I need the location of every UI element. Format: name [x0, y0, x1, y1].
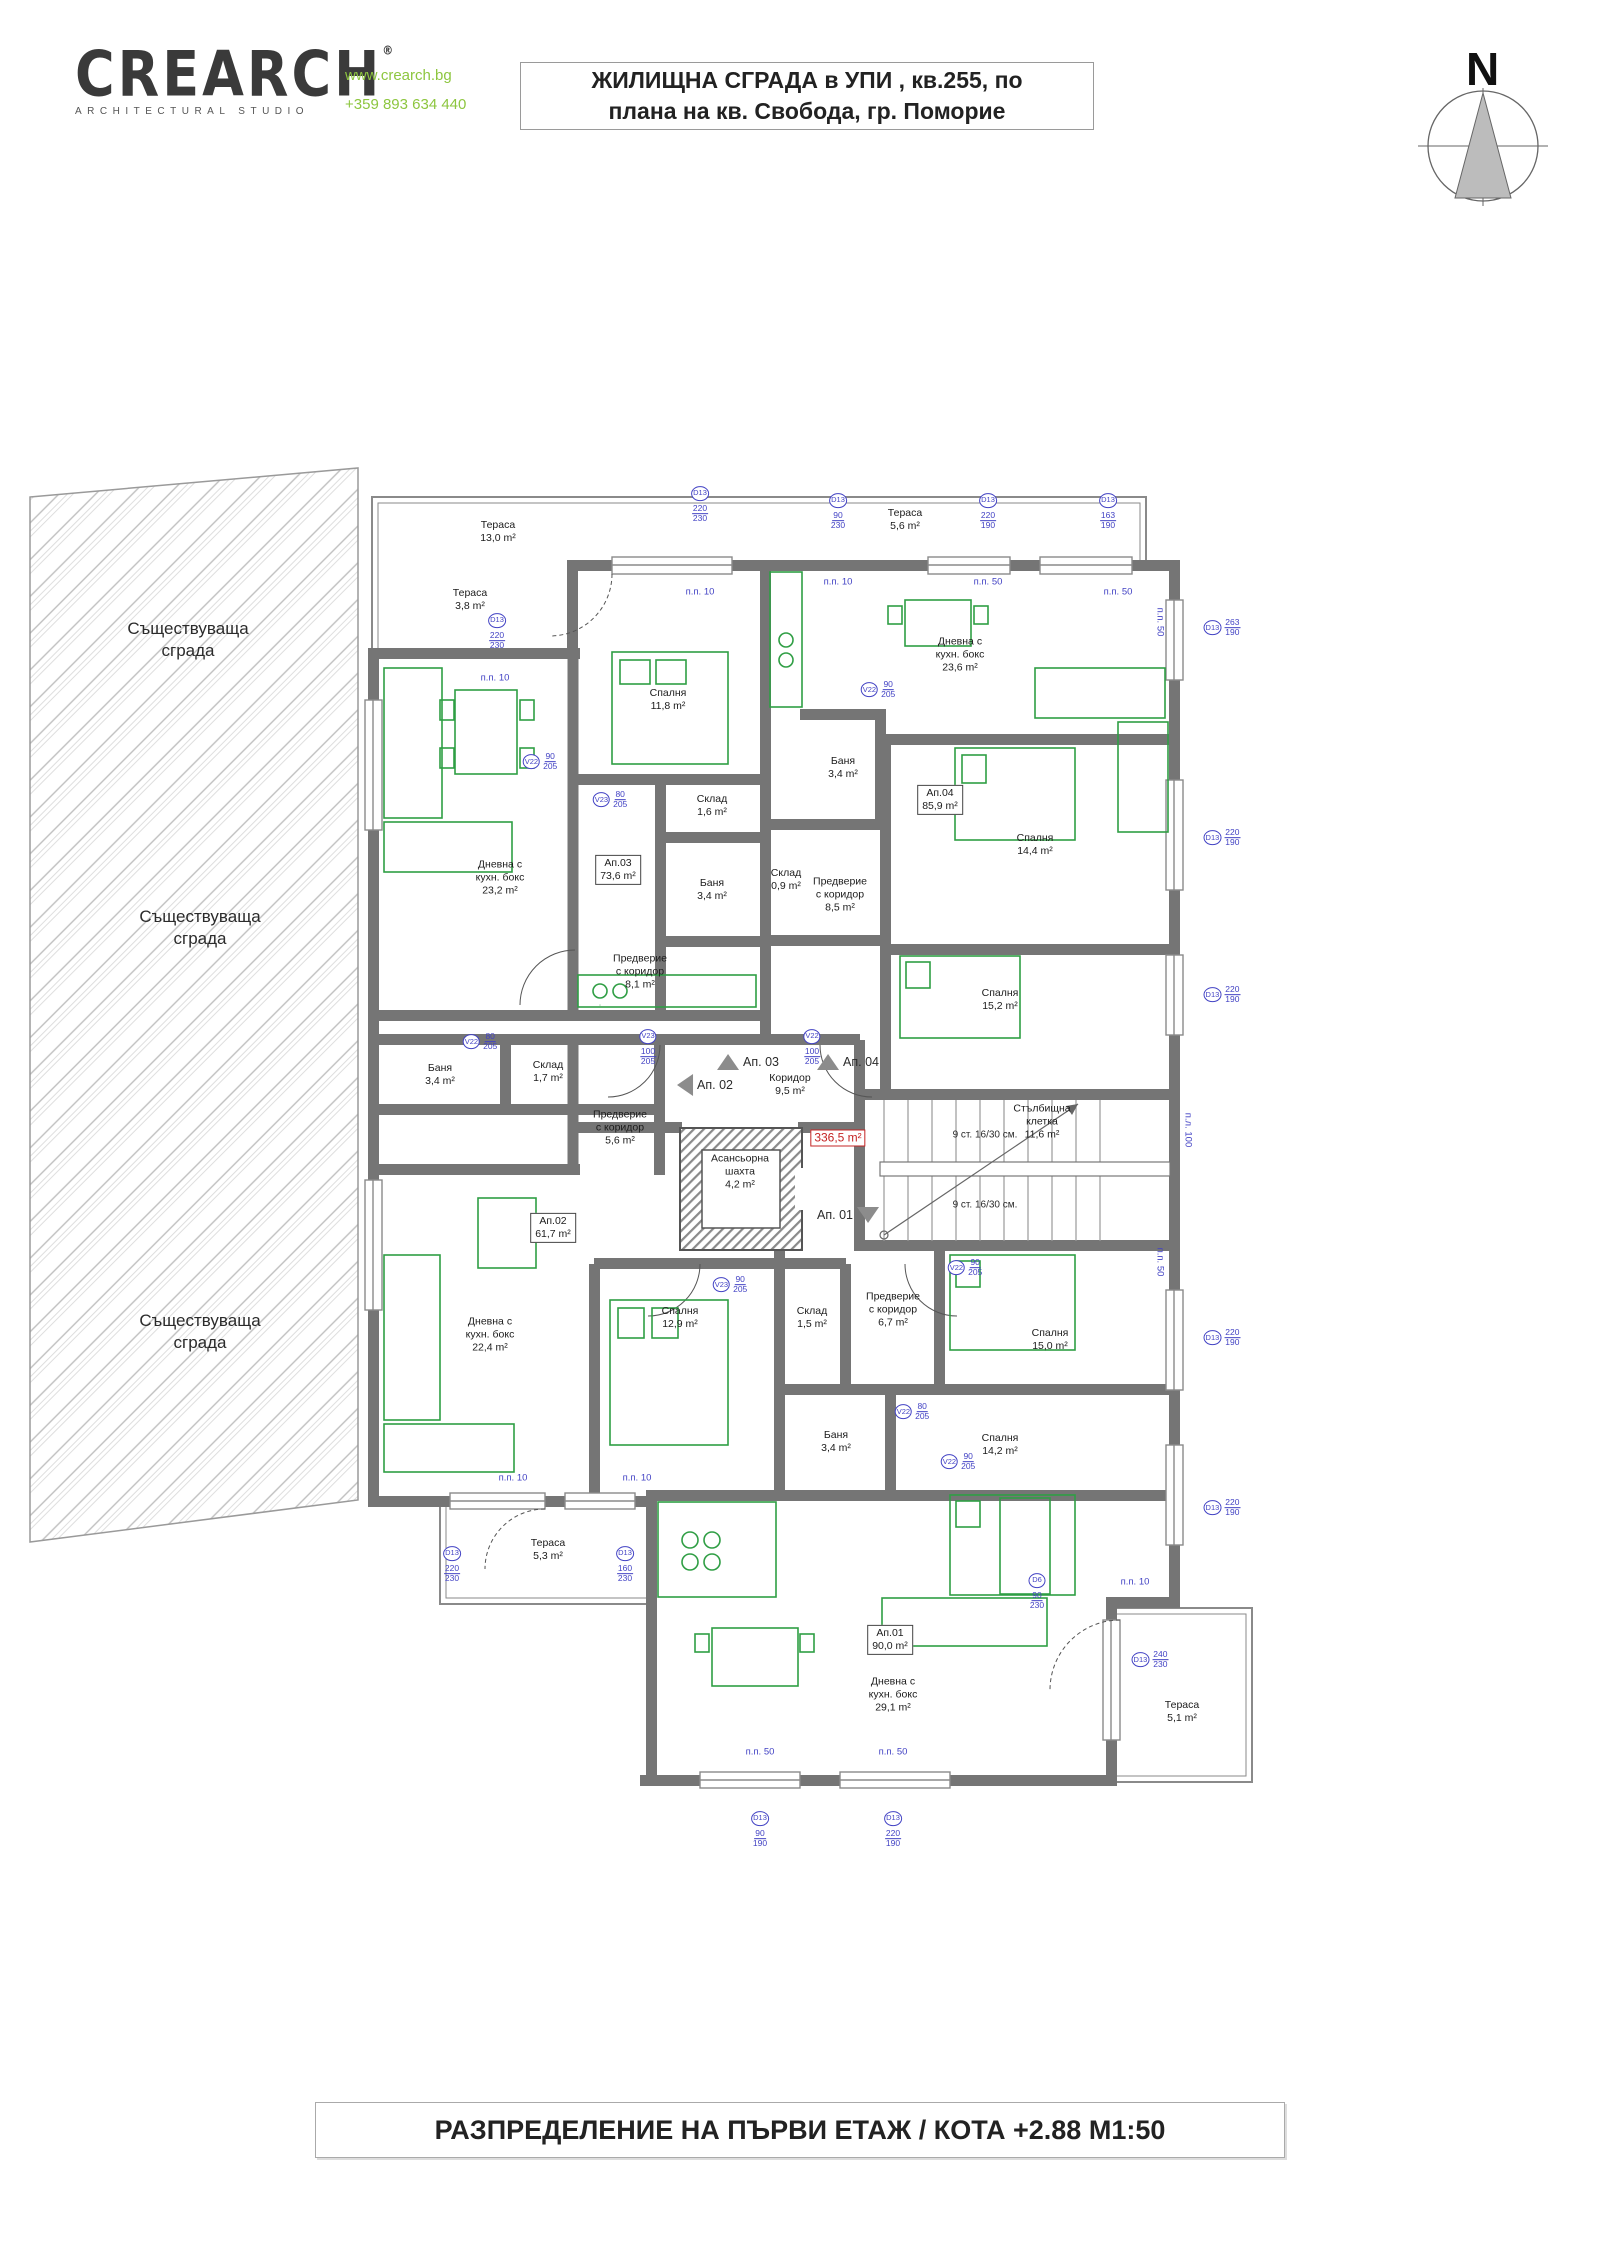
north-arrow: N [1418, 43, 1548, 206]
existing-building-hatch [30, 468, 358, 1542]
drawing-sheet: CREARCH® ARCHITECTURAL STUDIO www.crearc… [0, 0, 1600, 2265]
sheet-title-bar: РАЗПРЕДЕЛЕНИЕ НА ПЪРВИ ЕТАЖ / КОТА +2.88… [315, 2102, 1285, 2158]
sheet-title: РАЗПРЕДЕЛЕНИЕ НА ПЪРВИ ЕТАЖ / КОТА +2.88… [435, 2115, 1166, 2146]
north-label: N [1466, 43, 1499, 95]
floor-plan-svg: N [0, 0, 1600, 2265]
elevator-shaft [680, 1128, 805, 1250]
